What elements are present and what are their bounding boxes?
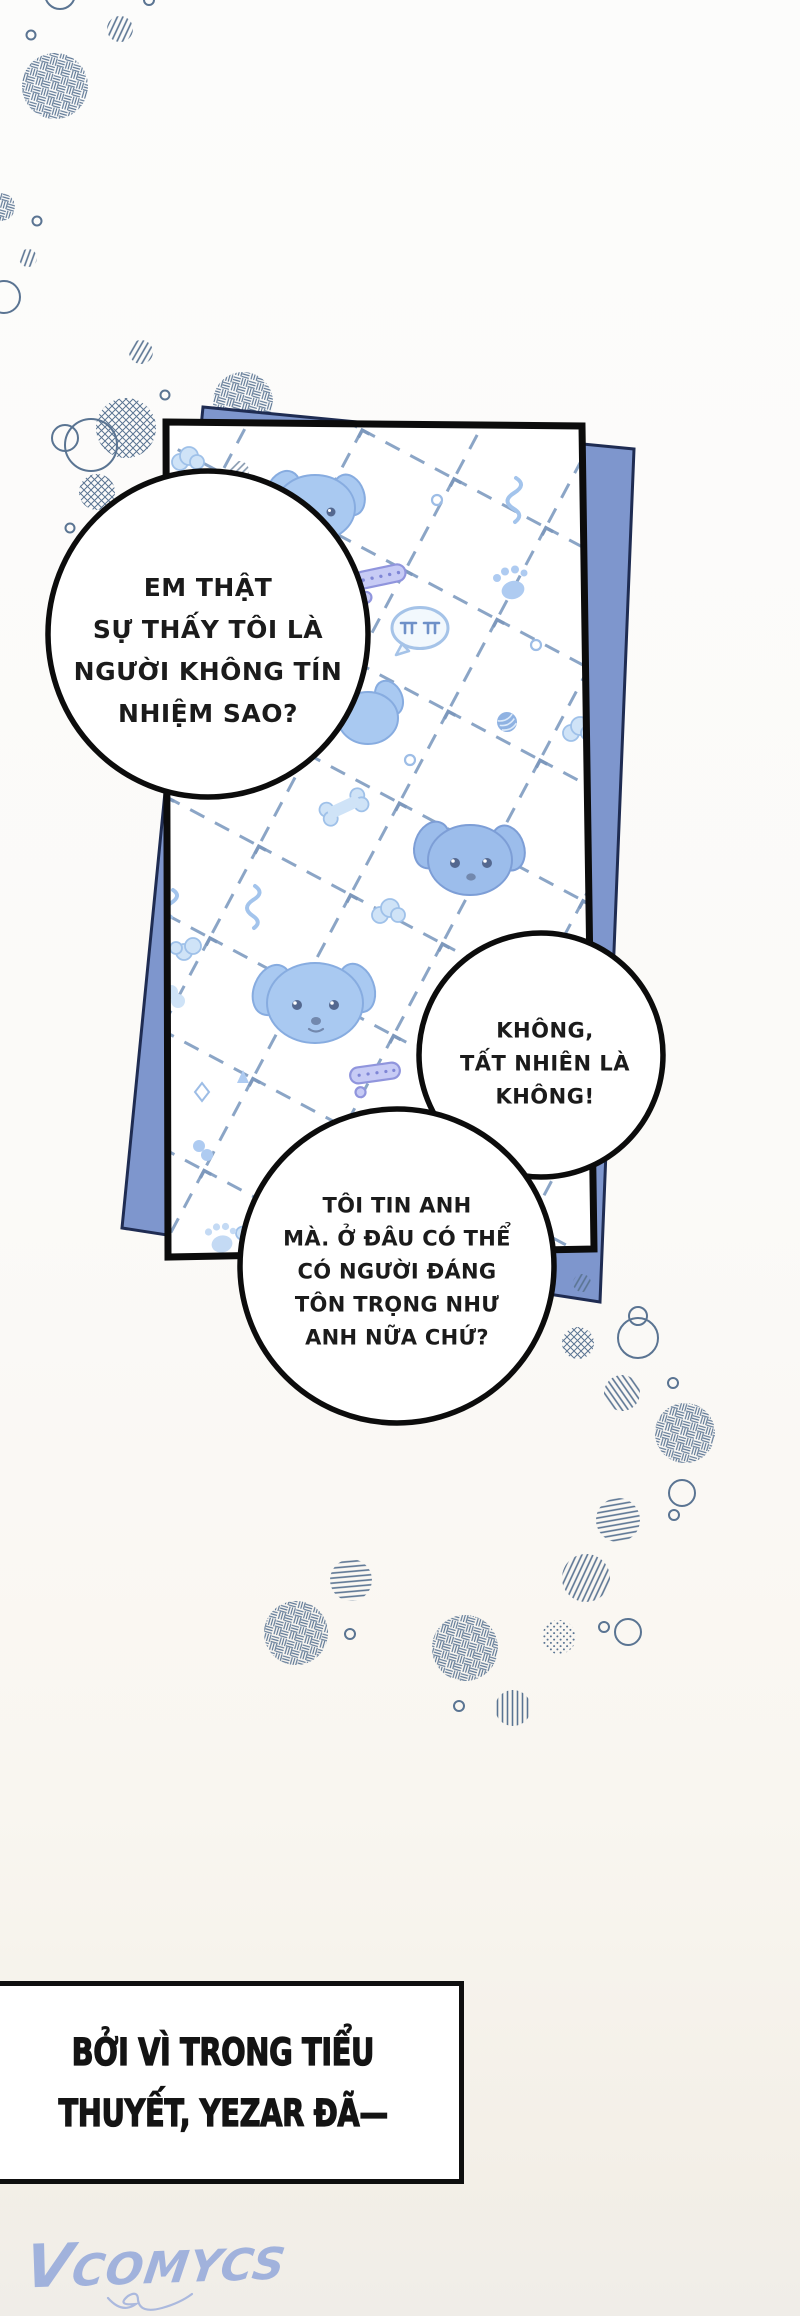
speech-line: TÔI TIN ANH xyxy=(283,1190,511,1223)
speech-line: NHIỆM SAO? xyxy=(74,693,343,735)
speech-line: KHÔNG, xyxy=(460,1015,630,1048)
comic-art xyxy=(0,0,800,2316)
speech-line: TẤT NHIÊN LÀ xyxy=(460,1048,630,1081)
caption-box: BỞI VÌ TRONG TIỂU THUYẾT, YEZAR ĐÃ— xyxy=(0,1981,464,2184)
watermark-flourish-icon xyxy=(104,2290,194,2316)
speech-text-denial: KHÔNG, TẤT NHIÊN LÀ KHÔNG! xyxy=(460,1015,630,1114)
watermark: VCOMYCS xyxy=(26,2228,286,2314)
speech-text-question: EM THẬT SỰ THẤY TÔI LÀ NGƯỜI KHÔNG TÍN N… xyxy=(74,567,343,735)
caption-line: THUYẾT, YEZAR ĐÃ— xyxy=(58,2083,387,2144)
speech-text-trust: TÔI TIN ANH MÀ. Ở ĐÂU CÓ THỂ CÓ NGƯỜI ĐÁ… xyxy=(283,1190,511,1355)
deco-circles-top-left xyxy=(0,0,170,533)
speech-line: EM THẬT xyxy=(74,567,343,609)
speech-line: ANH NỮA CHỨ? xyxy=(283,1322,511,1355)
comic-page: EM THẬT SỰ THẤY TÔI LÀ NGƯỜI KHÔNG TÍN N… xyxy=(0,0,800,2316)
speech-line: SỰ THẤY TÔI LÀ xyxy=(74,609,343,651)
caption-line: BỞI VÌ TRONG TIỂU xyxy=(72,2022,374,2083)
speech-line: KHÔNG! xyxy=(460,1081,630,1114)
deco-circles-bottom xyxy=(264,1557,576,1726)
speech-line: CÓ NGƯỜI ĐÁNG xyxy=(283,1256,511,1289)
speech-line: TÔN TRỌNG NHƯ xyxy=(283,1289,511,1322)
speech-line: NGƯỜI KHÔNG TÍN xyxy=(74,651,343,693)
speech-line: MÀ. Ở ĐÂU CÓ THỂ xyxy=(283,1223,511,1256)
deco-circles-right xyxy=(554,1271,715,1645)
